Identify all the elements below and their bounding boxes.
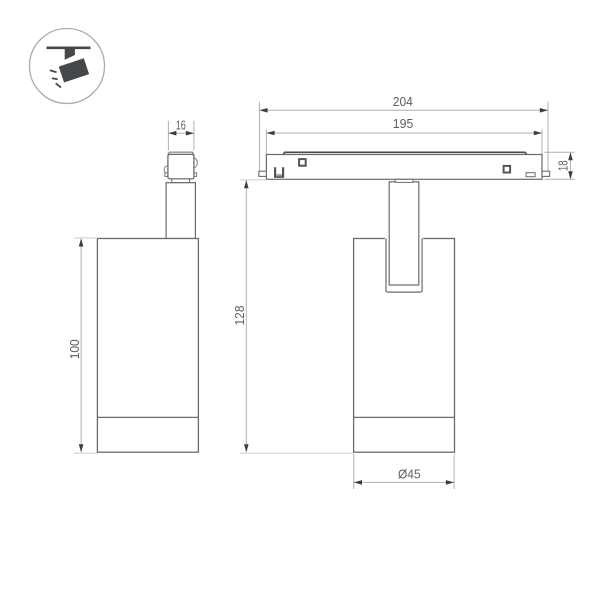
svg-text:100: 100 bbox=[67, 339, 82, 359]
svg-text:18: 18 bbox=[555, 160, 570, 171]
svg-text:Ø45: Ø45 bbox=[398, 466, 421, 481]
svg-text:128: 128 bbox=[232, 306, 247, 326]
svg-text:204: 204 bbox=[393, 94, 413, 109]
svg-text:195: 195 bbox=[393, 116, 414, 131]
svg-text:16: 16 bbox=[176, 118, 186, 133]
